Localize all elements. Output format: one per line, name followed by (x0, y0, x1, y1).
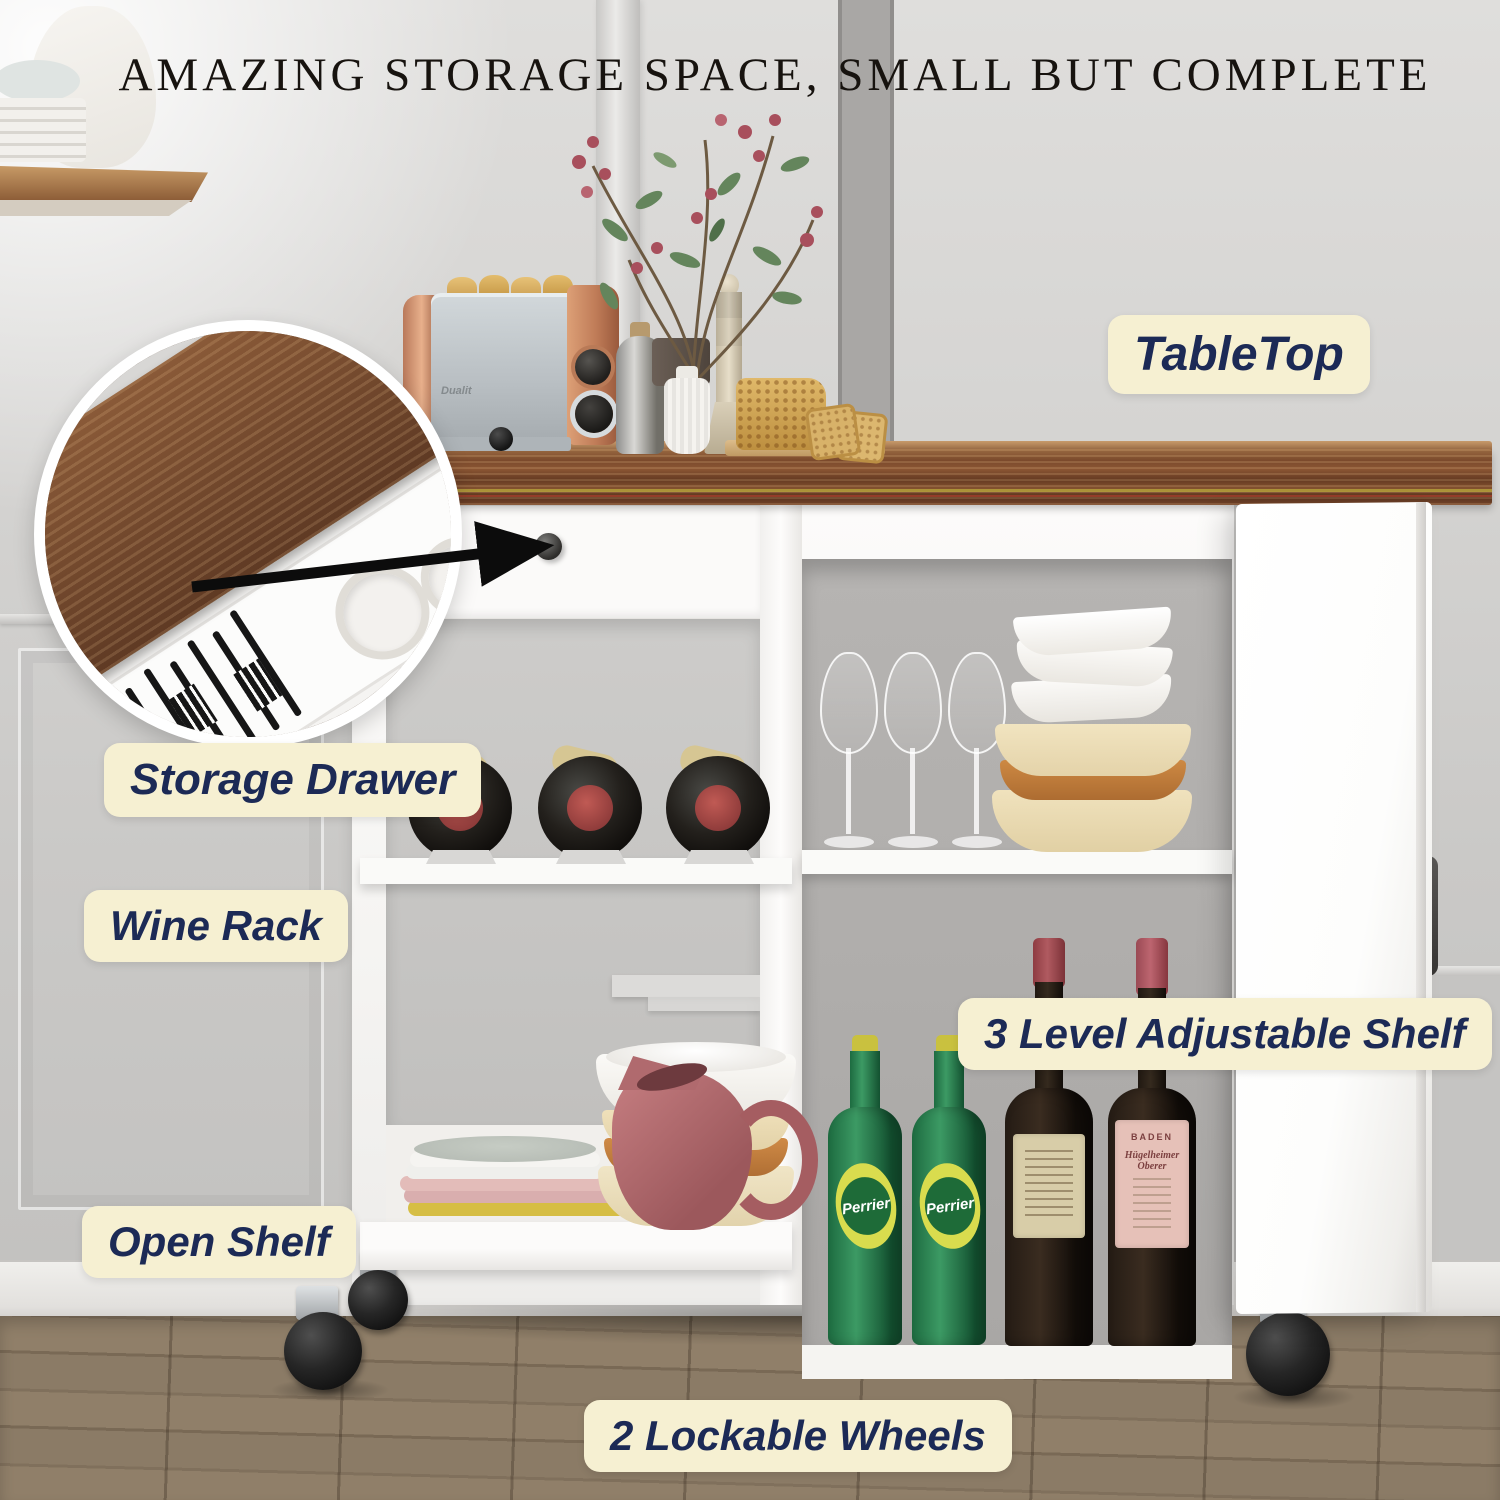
cream-bowl-2 (995, 724, 1191, 776)
bread-slice (805, 403, 862, 461)
cabinet-adjustable-shelf (802, 850, 1232, 874)
pitcher-handle (724, 1100, 818, 1220)
bottle-stand (426, 850, 496, 864)
wine-bottle-bottom (666, 756, 770, 860)
bottle-stand (684, 850, 754, 864)
wine-label-pink: BADEN Hügelheimer Oberer (1115, 1120, 1189, 1248)
glass-base (888, 836, 938, 848)
plate-stack (398, 1136, 626, 1226)
wall-shelf-edge (0, 200, 192, 216)
wall-shelf-group (0, 0, 215, 215)
bottle-punt (695, 785, 741, 831)
perrier-label-text: Perrier (925, 1194, 975, 1218)
cabinet-bottom-board (802, 1345, 1232, 1379)
perrier-label-text: Perrier (841, 1194, 891, 1218)
vase-body (664, 378, 710, 454)
wine-glass (820, 652, 878, 852)
callout-adjustable-shelf: 3 Level Adjustable Shelf (958, 998, 1492, 1070)
white-vase (664, 366, 710, 454)
wine-region-text: BADEN (1115, 1132, 1189, 1142)
plate-gray-top (414, 1136, 596, 1162)
glass-stem (910, 748, 915, 834)
glass-stem (974, 748, 979, 834)
bowl-stack-right (990, 608, 1195, 852)
pitcher (612, 1056, 787, 1230)
wine-glass (884, 652, 942, 852)
plant-branches (545, 100, 845, 380)
wine-cap (1033, 938, 1065, 988)
wine-label-beige (1013, 1134, 1085, 1238)
glass-bowl (820, 652, 878, 754)
wine-label-lines (1133, 1178, 1171, 1230)
caster-wheel (348, 1270, 408, 1330)
door-edge (1416, 502, 1426, 1312)
wine-bottle-bottom (538, 756, 642, 860)
wainscot-rail-right (1430, 966, 1500, 976)
bottle-stand (556, 850, 626, 864)
product-scene: AMAZING STORAGE SPACE, SMALL BUT COMPLET… (0, 0, 1500, 1500)
wall-molding-behind-2 (648, 997, 760, 1011)
toaster-browning-knob (575, 395, 613, 433)
plate-stack-topleft (0, 98, 86, 162)
callout-tabletop: TableTop (1108, 315, 1370, 394)
toaster-lever-ball (489, 427, 513, 451)
tabletop-streak-yellow (330, 489, 1492, 492)
page-title: AMAZING STORAGE SPACE, SMALL BUT COMPLET… (110, 48, 1440, 102)
glass-bowl (884, 652, 942, 754)
cabinet-door (1236, 502, 1432, 1314)
glass-stem (846, 748, 851, 834)
wine-name-text: Hügelheimer Oberer (1115, 1150, 1189, 1172)
glass-base (824, 836, 874, 848)
wine-label-lines (1025, 1150, 1073, 1220)
wood-wall-shelf (0, 166, 208, 202)
callout-wine-rack: Wine Rack (84, 890, 348, 962)
callout-lockable-wheels: 2 Lockable Wheels (584, 1400, 1012, 1472)
perrier-bottle: Perrier (912, 1035, 986, 1345)
caster-wheel (284, 1312, 362, 1390)
caster-wheel (1246, 1312, 1330, 1396)
callout-arrow (150, 495, 590, 615)
perrier-bottle: Perrier (828, 1035, 902, 1345)
wall-molding-behind (612, 975, 760, 997)
bottle-punt (567, 785, 613, 831)
callout-storage-drawer: Storage Drawer (104, 743, 481, 817)
callout-open-shelf: Open Shelf (82, 1206, 356, 1278)
